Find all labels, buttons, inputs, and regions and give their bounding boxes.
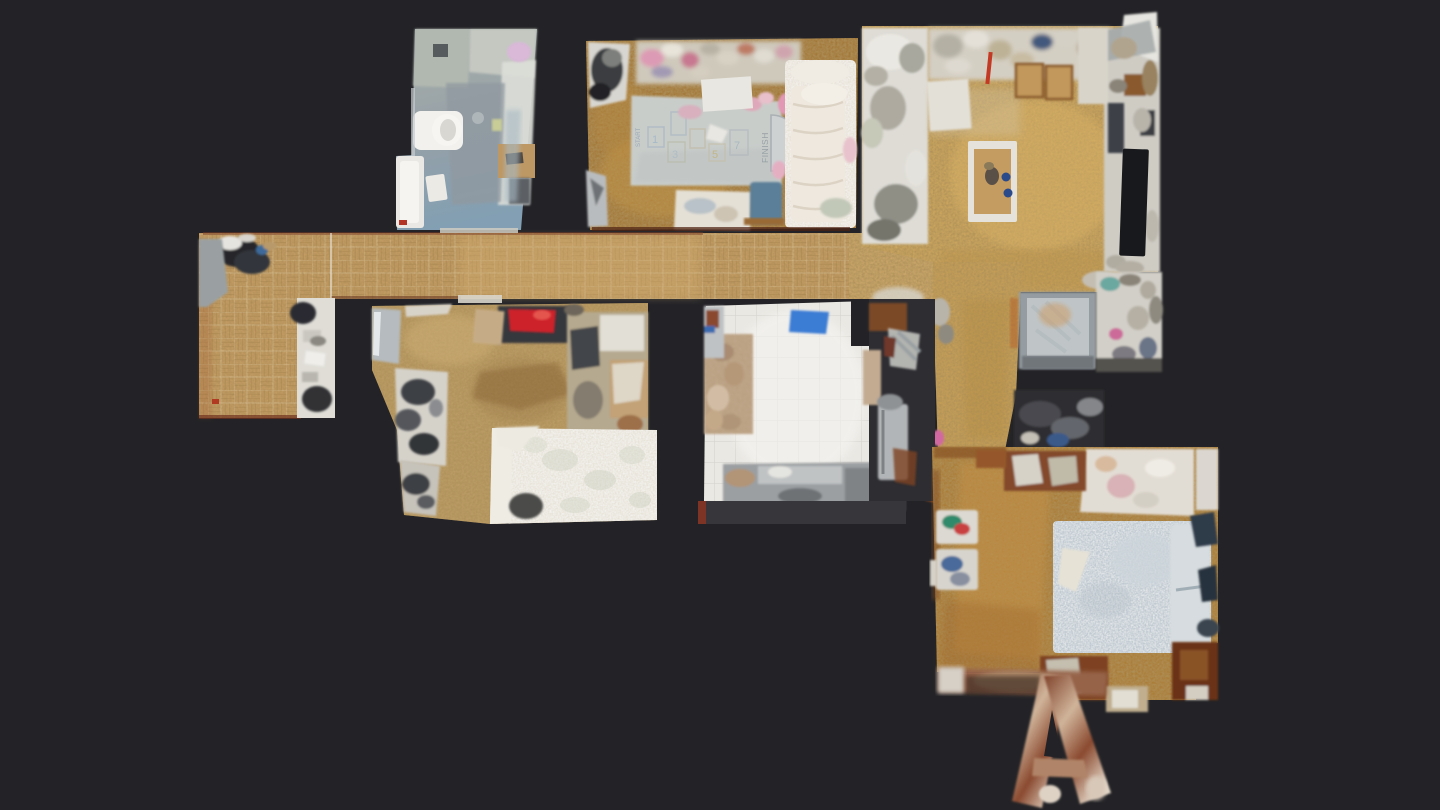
svg-text:START: START bbox=[636, 128, 642, 147]
svg-text:3: 3 bbox=[672, 149, 678, 161]
svg-text:1: 1 bbox=[652, 134, 658, 146]
svg-text:7: 7 bbox=[734, 140, 740, 152]
svg-text:5: 5 bbox=[712, 149, 718, 161]
svg-text:FINISH: FINISH bbox=[760, 132, 770, 163]
